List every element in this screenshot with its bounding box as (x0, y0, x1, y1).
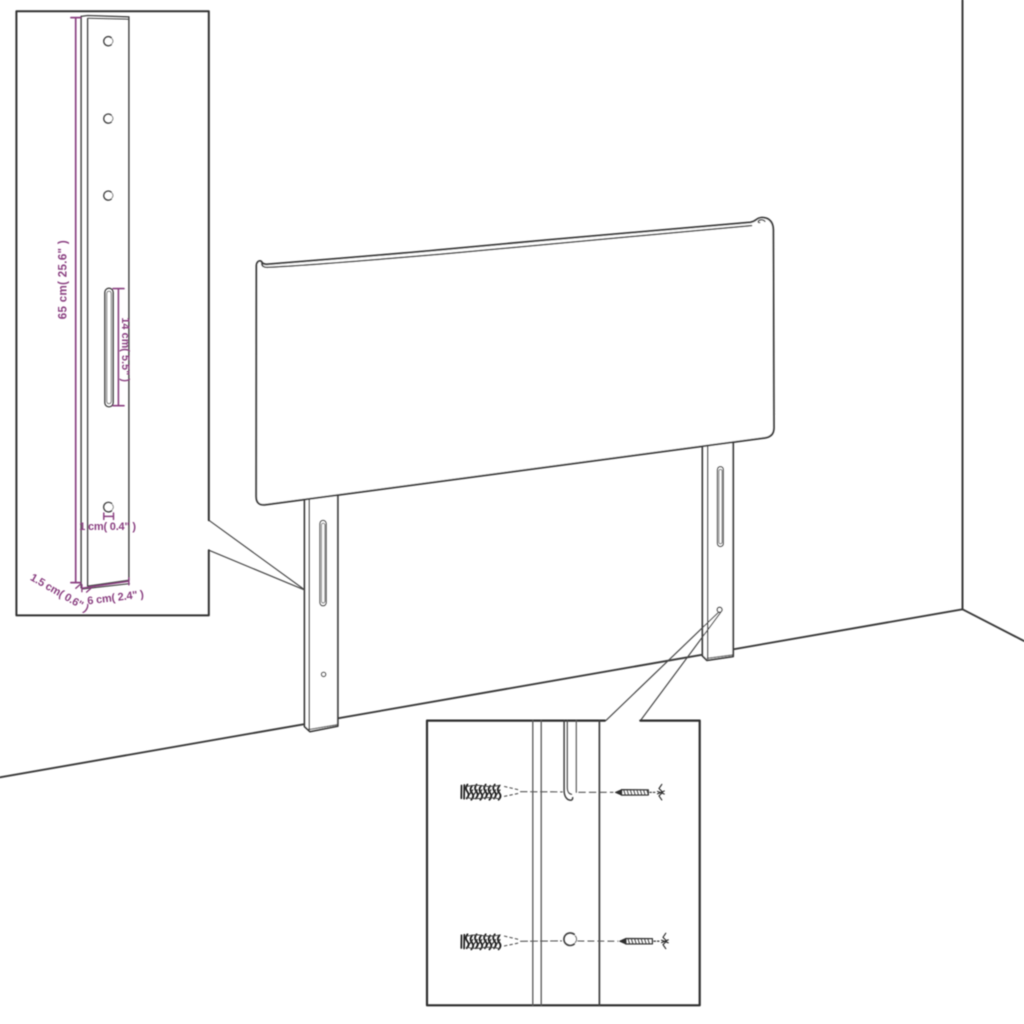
svg-text:6 cm( 2.4" ): 6 cm( 2.4" ) (87, 589, 145, 608)
svg-text:14 cm( 5.5" ): 14 cm( 5.5" ) (119, 318, 131, 383)
svg-text:1 cm( 0.4" ): 1 cm( 0.4" ) (79, 521, 136, 533)
svg-text:65 cm( 25.6" ): 65 cm( 25.6" ) (58, 240, 70, 319)
